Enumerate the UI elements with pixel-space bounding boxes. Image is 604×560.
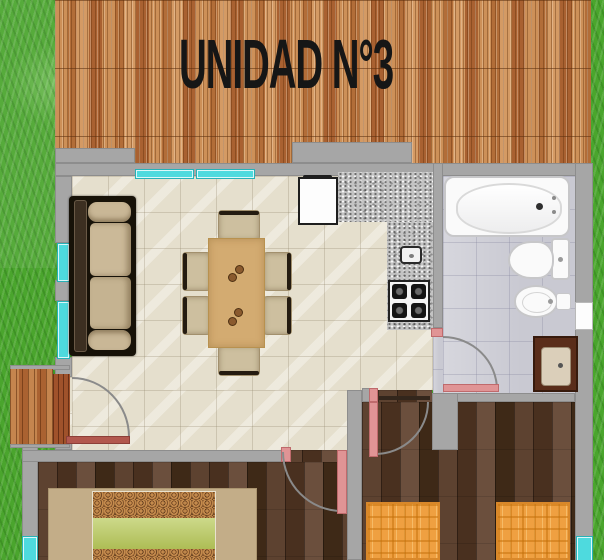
chair-back: [183, 297, 187, 334]
entry-porch: [10, 369, 53, 446]
bedroom2-door-leaf: [369, 402, 378, 457]
bed-green-blanket: [93, 518, 215, 549]
dining-chair-right-2: [263, 296, 292, 335]
roof-left-ledge: [55, 148, 135, 163]
sofa: [69, 196, 136, 356]
bed-headboard-blanket: [93, 492, 215, 518]
kitchen-sink: [400, 246, 422, 264]
entry-porch-step: [53, 374, 70, 445]
living-window-top-1: [135, 169, 194, 179]
kitchen-counter-top: [338, 172, 433, 222]
bathtub-basin: [456, 183, 562, 234]
bathroom-left-wall: [433, 163, 443, 328]
chair-back: [219, 211, 259, 215]
bedroom2-bed-right: [496, 502, 570, 560]
burner: [392, 303, 407, 318]
floor-plan: UNIDAD N°3: [0, 0, 604, 560]
refrigerator: [298, 177, 338, 225]
table-decor: [228, 317, 237, 326]
chair-back: [287, 253, 291, 290]
bedroom2-door-lintel: [379, 396, 430, 400]
bathtub: [444, 176, 570, 237]
roof-deck: UNIDAD N°3: [55, 0, 591, 163]
porch-bottom-edge: [10, 444, 70, 448]
chair-back: [183, 253, 187, 290]
dining-chair-right-1: [263, 252, 292, 291]
grass-mow-stripe: [0, 0, 57, 268]
sofa-cushion: [90, 277, 131, 329]
bathroom-door-leaf: [443, 384, 499, 392]
burner: [411, 303, 426, 318]
toilet-bowl: [508, 241, 554, 279]
stove: [388, 280, 430, 322]
bedrooms-divider-wall: [347, 390, 362, 560]
dining-chair-left-1: [182, 252, 211, 291]
table-decor: [234, 308, 243, 317]
refrigerator-handle: [303, 175, 332, 179]
unit-title: UNIDAD N°3: [159, 24, 413, 104]
sink-drain: [409, 254, 414, 258]
bedroom2-window: [576, 536, 593, 560]
bedroom1-window: [22, 536, 38, 560]
chair-back: [287, 297, 291, 334]
sofa-armrest: [88, 202, 131, 222]
dining-chair-bottom: [218, 345, 260, 376]
bedroom2-closet-wall: [432, 393, 458, 450]
dining-chair-top: [218, 210, 260, 241]
bedroom2-door-jamb: [369, 388, 378, 402]
vanity-drain: [558, 363, 563, 368]
table-decor: [228, 273, 237, 282]
entry-door-leaf: [66, 436, 130, 444]
toilet-flush-button: [558, 257, 563, 262]
bathroom-window: [575, 302, 593, 330]
bathtub-faucet: [552, 196, 556, 200]
bathroom-door-opening: [433, 336, 443, 393]
bedroom1-bed: [92, 491, 216, 560]
dining-chair-left-2: [182, 296, 211, 335]
bedroom1-door-leaf: [337, 450, 347, 514]
bidet-faucet: [548, 299, 553, 304]
sofa-backrest: [74, 200, 87, 352]
chair-back: [219, 371, 259, 375]
bathtub-faucet: [552, 210, 556, 214]
bathtub-drain: [536, 203, 543, 210]
roof-notch: [292, 142, 412, 163]
bedroom2-bed-left: [366, 502, 440, 560]
vanity-cabinet: [533, 336, 578, 392]
bidet: [514, 285, 558, 318]
burner: [392, 284, 407, 299]
table-decor: [235, 265, 244, 274]
sofa-armrest: [88, 330, 131, 350]
vanity-basin: [541, 347, 571, 386]
bidet-plumbing: [556, 293, 571, 310]
burner: [411, 284, 426, 299]
dining-table: [208, 238, 265, 348]
bathroom-door-jamb: [431, 328, 443, 337]
living-window-top-2: [196, 169, 255, 179]
bedroom1-top-wall: [22, 450, 283, 462]
bed-foot-blanket: [93, 549, 215, 560]
sofa-cushion: [90, 223, 131, 276]
